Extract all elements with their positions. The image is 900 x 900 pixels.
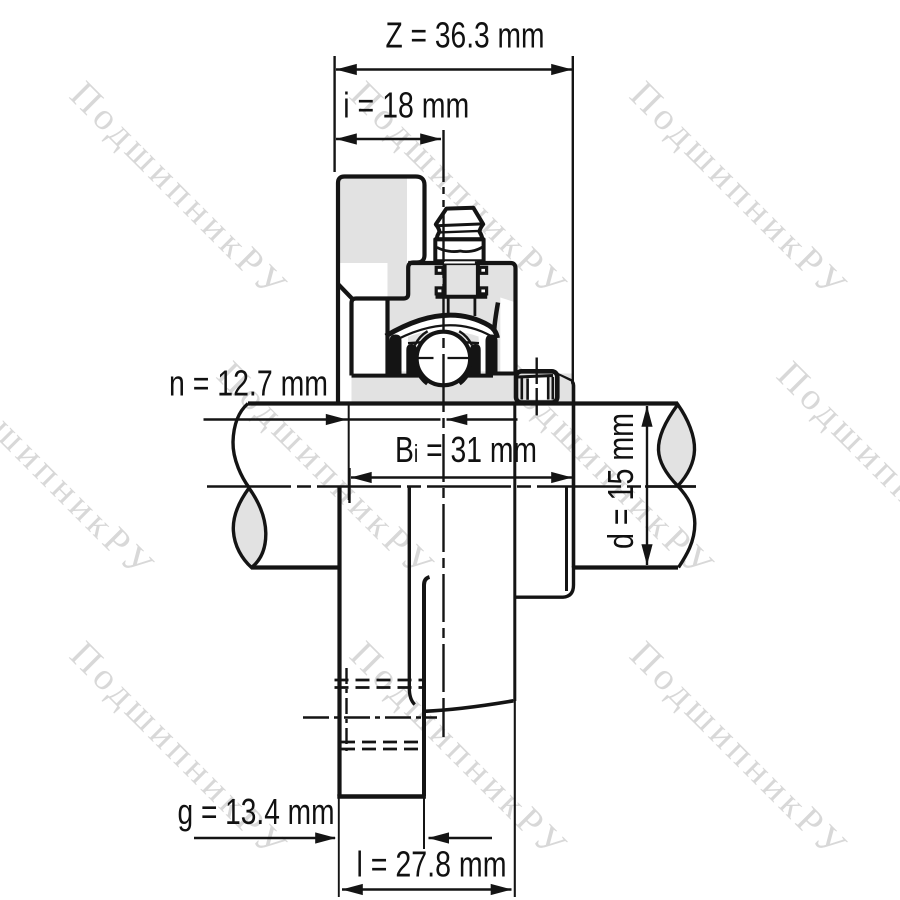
svg-text:i = 18 mm: i = 18 mm — [343, 84, 469, 125]
svg-text:l = 27.8 mm: l = 27.8 mm — [357, 844, 507, 885]
svg-text:g = 13.4 mm: g = 13.4 mm — [178, 791, 335, 832]
svg-text:d = 15 mm: d = 15 mm — [600, 413, 641, 549]
svg-text:n = 12.7 mm: n = 12.7 mm — [169, 363, 328, 404]
svg-text:Z = 36.3 mm: Z = 36.3 mm — [386, 15, 545, 56]
